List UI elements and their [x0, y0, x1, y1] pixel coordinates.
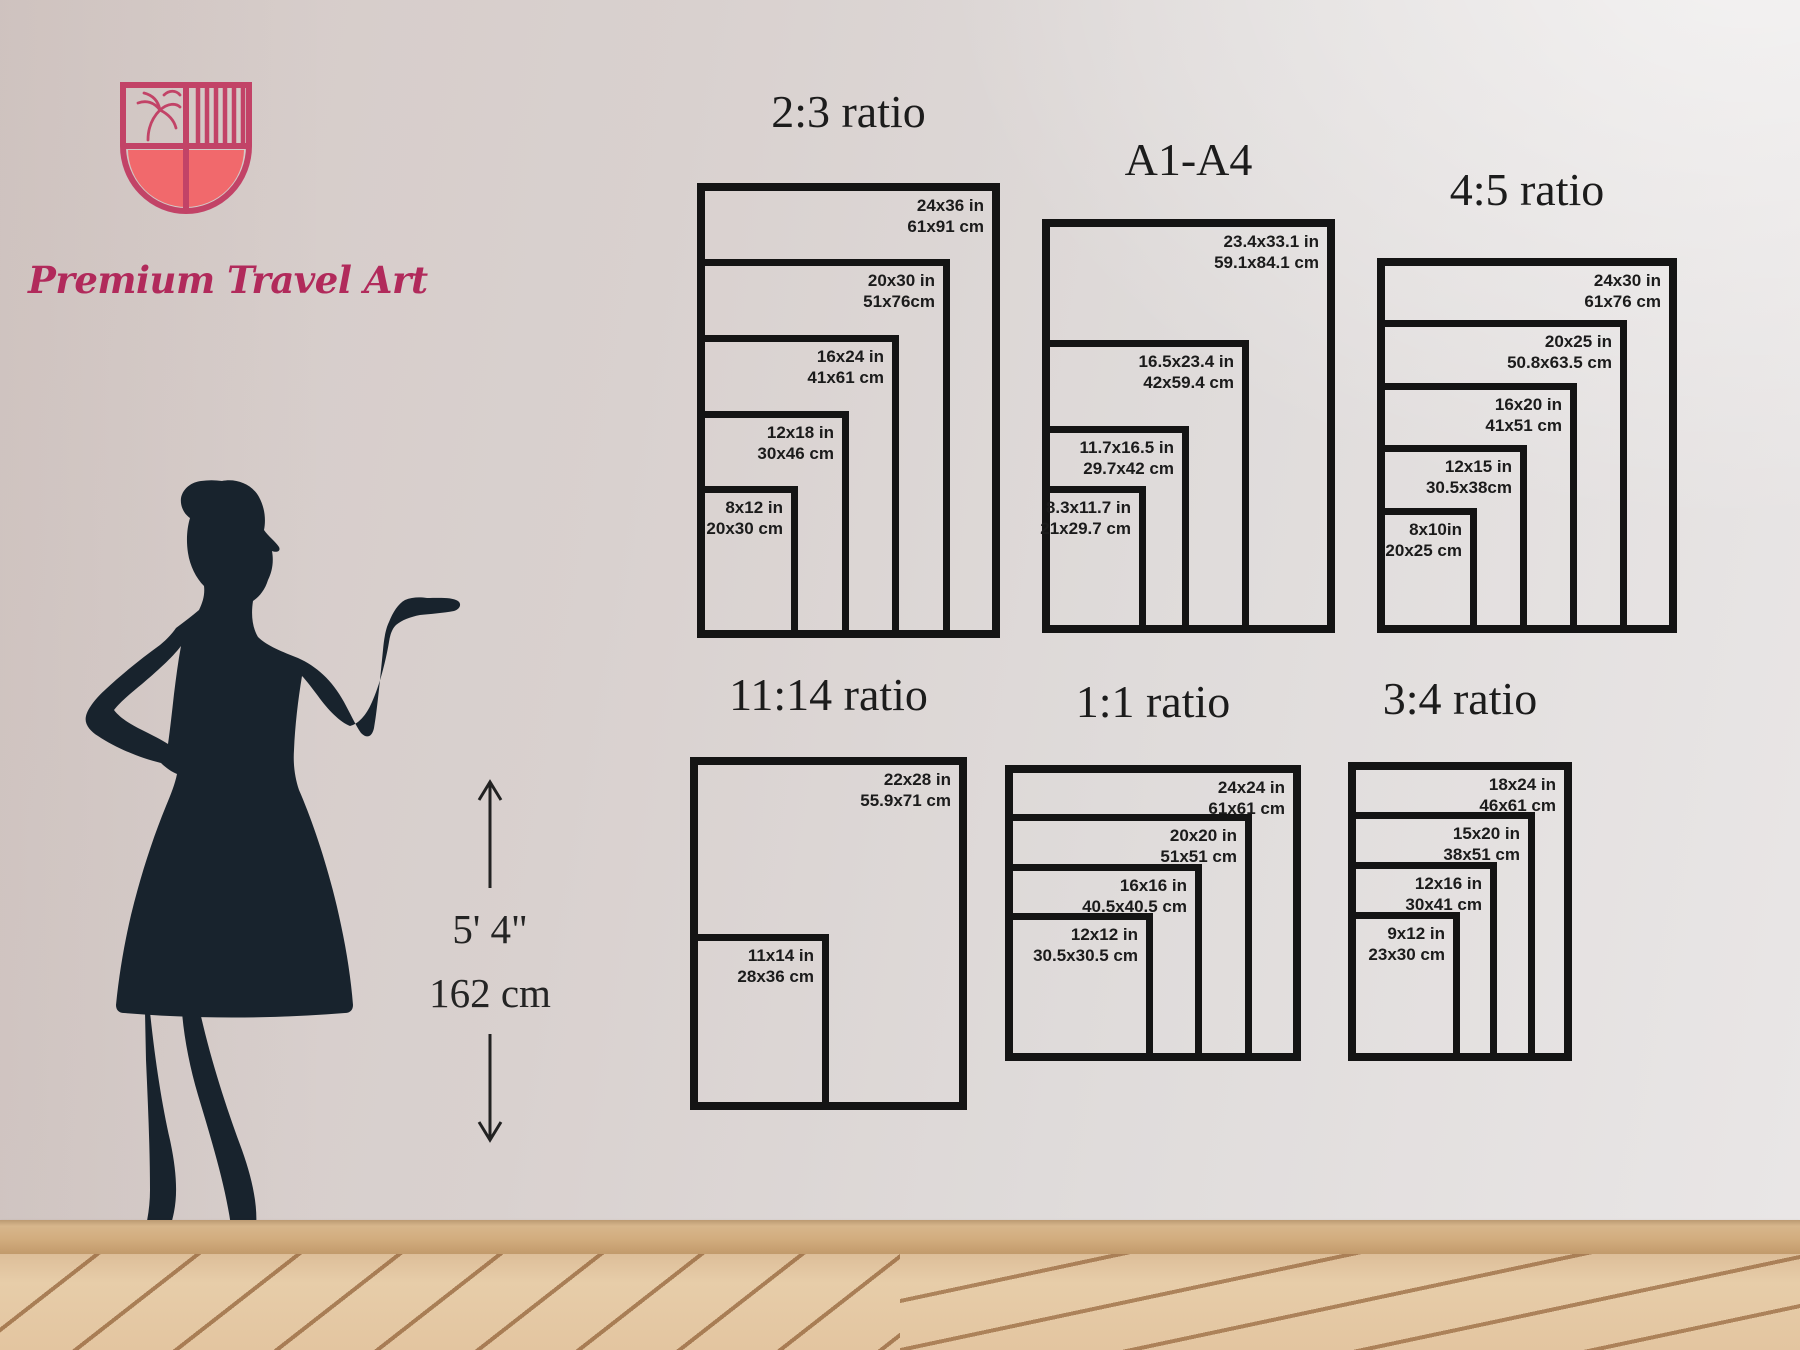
size-chart-2-3-ratio: 2:3 ratio24x36 in61x91 cm20x30 in51x76cm… [697, 183, 1000, 638]
size-label-inches: 20x25 in [1507, 331, 1612, 352]
size-frame-8x10in: 8x10in20x25 cm [1377, 508, 1477, 633]
size-label-cm: 59.1x84.1 cm [1214, 252, 1319, 273]
size-label-cm: 21x29.7 cm [1040, 518, 1131, 539]
size-label-15x20in: 15x20 in38x51 cm [1443, 823, 1520, 865]
size-label-22x28in: 22x28 in55.9x71 cm [860, 769, 951, 811]
size-label-inches: 12x18 in [757, 422, 834, 443]
size-label-8x10in: 8x10in20x25 cm [1385, 519, 1462, 561]
size-label-20x20in: 20x20 in51x51 cm [1160, 825, 1237, 867]
chart-title-3-4-ratio: 3:4 ratio [1383, 676, 1538, 722]
size-label-18x24in: 18x24 in46x61 cm [1479, 774, 1556, 816]
chart-title-4-5-ratio: 4:5 ratio [1450, 167, 1605, 213]
shield-stripes [198, 88, 243, 143]
brand-shield-icon [118, 80, 254, 216]
chart-title-2-3-ratio: 2:3 ratio [771, 89, 926, 135]
size-frame-12x12in: 12x12 in30.5x30.5 cm [1005, 913, 1153, 1061]
size-label-11x14in: 11x14 in28x36 cm [737, 945, 814, 987]
size-label-inches: 12x15 in [1426, 456, 1512, 477]
size-label-inches: 11.7x16.5 in [1079, 437, 1174, 458]
size-chart-11-14-ratio: 11:14 ratio22x28 in55.9x71 cm11x14 in28x… [690, 758, 967, 1110]
size-label-cm: 20x30 cm [706, 518, 783, 539]
print-size-guide-poster: Premium Travel Art 5' 4" 162 cm 2:3 r [0, 0, 1800, 1350]
size-label-cm: 42x59.4 cm [1139, 372, 1234, 393]
floor-planks-right [900, 1254, 1800, 1350]
size-label-inches: 23.4x33.1 in [1214, 231, 1319, 252]
size-label-16x24in: 16x24 in41x61 cm [807, 346, 884, 388]
size-label-inches: 22x28 in [860, 769, 951, 790]
size-label-cm: 50.8x63.5 cm [1507, 352, 1612, 373]
size-label-20x25in: 20x25 in50.8x63.5 cm [1507, 331, 1612, 373]
size-frame-11x14in: 11x14 in28x36 cm [690, 934, 829, 1110]
size-frame-8x12in: 8x12 in20x30 cm [697, 486, 798, 638]
woman-silhouette-icon [60, 470, 470, 1290]
size-label-24x36in: 24x36 in61x91 cm [907, 195, 984, 237]
size-label-inches: 11x14 in [737, 945, 814, 966]
size-label-inches: 12x12 in [1033, 924, 1138, 945]
size-label-inches: 24x30 in [1584, 270, 1661, 291]
size-chart-a1-a4: A1-A423.4x33.1 in59.1x84.1 cm16.5x23.4 i… [1042, 220, 1335, 633]
size-label-inches: 8x10in [1385, 519, 1462, 540]
baseboard [0, 1220, 1800, 1254]
size-label-cm: 41x51 cm [1485, 415, 1562, 436]
size-label-cm: 55.9x71 cm [860, 790, 951, 811]
size-label-16x16in: 16x16 in40.5x40.5 cm [1082, 875, 1187, 917]
floor-planks-left [0, 1254, 900, 1350]
size-label-24x24in: 24x24 in61x61 cm [1208, 777, 1285, 819]
size-label-23.4x33.1in: 23.4x33.1 in59.1x84.1 cm [1214, 231, 1319, 273]
up-arrow-icon [475, 778, 505, 890]
size-label-cm: 30.5x30.5 cm [1033, 945, 1138, 966]
size-frame-8.3x11.7in: 8.3x11.7 in21x29.7 cm [1042, 486, 1146, 633]
size-label-9x12in: 9x12 in23x30 cm [1368, 923, 1445, 965]
size-label-24x30in: 24x30 in61x76 cm [1584, 270, 1661, 312]
size-frame-9x12in: 9x12 in23x30 cm [1348, 912, 1460, 1061]
size-label-inches: 9x12 in [1368, 923, 1445, 944]
chart-title-11-14-ratio: 11:14 ratio [729, 672, 928, 718]
size-label-16.5x23.4in: 16.5x23.4 in42x59.4 cm [1139, 351, 1234, 393]
size-label-cm: 23x30 cm [1368, 944, 1445, 965]
height-metric: 162 cm [429, 968, 551, 1018]
size-label-inches: 20x20 in [1160, 825, 1237, 846]
height-imperial: 5' 4" [429, 904, 551, 954]
size-label-cm: 29.7x42 cm [1079, 458, 1174, 479]
size-label-inches: 12x16 in [1405, 873, 1482, 894]
size-label-inches: 24x24 in [1208, 777, 1285, 798]
size-label-8x12in: 8x12 in20x30 cm [706, 497, 783, 539]
size-label-inches: 16x24 in [807, 346, 884, 367]
size-label-inches: 8.3x11.7 in [1040, 497, 1131, 518]
size-label-20x30in: 20x30 in51x76cm [863, 270, 935, 312]
size-label-cm: 30x46 cm [757, 443, 834, 464]
size-label-cm: 28x36 cm [737, 966, 814, 987]
size-label-12x16in: 12x16 in30x41 cm [1405, 873, 1482, 915]
size-chart-1-1-ratio: 1:1 ratio24x24 in61x61 cm20x20 in51x51 c… [1005, 765, 1301, 1061]
size-label-cm: 41x61 cm [807, 367, 884, 388]
size-label-12x15in: 12x15 in30.5x38cm [1426, 456, 1512, 498]
size-label-11.7x16.5in: 11.7x16.5 in29.7x42 cm [1079, 437, 1174, 479]
chart-title-a1-a4: A1-A4 [1125, 137, 1253, 183]
size-label-cm: 61x91 cm [907, 216, 984, 237]
wood-floor [0, 1254, 1800, 1350]
size-label-cm: 61x76 cm [1584, 291, 1661, 312]
size-chart-3-4-ratio: 3:4 ratio18x24 in46x61 cm15x20 in38x51 c… [1348, 762, 1572, 1061]
size-label-inches: 24x36 in [907, 195, 984, 216]
height-marker: 5' 4" 162 cm [410, 778, 570, 1170]
size-label-16x20in: 16x20 in41x51 cm [1485, 394, 1562, 436]
size-label-inches: 8x12 in [706, 497, 783, 518]
size-label-cm: 20x25 cm [1385, 540, 1462, 561]
palm-tree-bird-icon [138, 91, 180, 140]
size-label-inches: 18x24 in [1479, 774, 1556, 795]
size-label-inches: 16x20 in [1485, 394, 1562, 415]
down-arrow-icon [475, 1032, 505, 1144]
size-label-12x18in: 12x18 in30x46 cm [757, 422, 834, 464]
brand-name: Premium Travel Art [28, 258, 358, 302]
size-label-12x12in: 12x12 in30.5x30.5 cm [1033, 924, 1138, 966]
size-label-inches: 16.5x23.4 in [1139, 351, 1234, 372]
chart-title-1-1-ratio: 1:1 ratio [1076, 679, 1231, 725]
size-label-inches: 20x30 in [863, 270, 935, 291]
size-label-cm: 51x76cm [863, 291, 935, 312]
size-chart-4-5-ratio: 4:5 ratio24x30 in61x76 cm20x25 in50.8x63… [1377, 258, 1677, 633]
size-label-cm: 30.5x38cm [1426, 477, 1512, 498]
size-label-inches: 15x20 in [1443, 823, 1520, 844]
size-label-inches: 16x16 in [1082, 875, 1187, 896]
size-label-8.3x11.7in: 8.3x11.7 in21x29.7 cm [1040, 497, 1131, 539]
